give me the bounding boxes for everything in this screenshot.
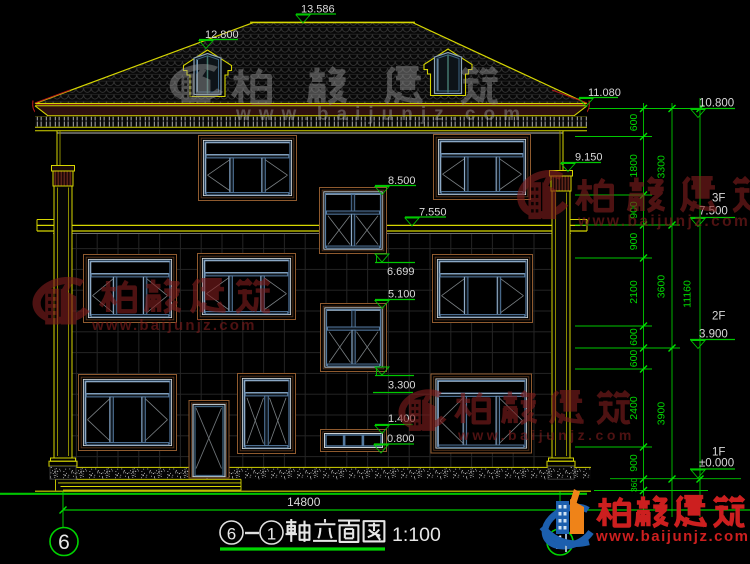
svg-text:11160: 11160 xyxy=(682,280,694,308)
svg-text:3.300: 3.300 xyxy=(388,380,416,392)
svg-text:www.baijunjz.com: www.baijunjz.com xyxy=(595,528,749,545)
svg-text:13.586: 13.586 xyxy=(301,4,335,16)
svg-text:3900: 3900 xyxy=(656,402,668,426)
svg-text:3300: 3300 xyxy=(656,155,668,179)
svg-text:0.800: 0.800 xyxy=(387,433,415,445)
svg-text:1:100: 1:100 xyxy=(392,524,441,546)
svg-text:2F: 2F xyxy=(712,311,725,323)
svg-text:2100: 2100 xyxy=(628,280,640,304)
svg-text:9.150: 9.150 xyxy=(575,152,603,164)
svg-text:10.800: 10.800 xyxy=(699,98,734,110)
svg-text:www.baijunjz.com: www.baijunjz.com xyxy=(577,213,750,230)
svg-text:900: 900 xyxy=(628,454,640,472)
svg-text:www.baijunjz.com: www.baijunjz.com xyxy=(91,317,257,334)
svg-text:6: 6 xyxy=(227,525,236,544)
svg-text:6.699: 6.699 xyxy=(387,266,415,278)
svg-text:2400: 2400 xyxy=(628,396,640,420)
svg-text:3600: 3600 xyxy=(656,275,668,299)
svg-text:3.900: 3.900 xyxy=(699,329,728,341)
svg-text:5.100: 5.100 xyxy=(388,289,416,301)
svg-text:360: 360 xyxy=(629,478,639,492)
svg-text:12.800: 12.800 xyxy=(205,29,239,41)
svg-text:7.550: 7.550 xyxy=(419,207,447,219)
svg-text:±0.000: ±0.000 xyxy=(699,458,734,470)
svg-text:www.baijunjz.com: www.baijunjz.com xyxy=(235,104,528,125)
svg-text:900: 900 xyxy=(628,233,640,251)
svg-text:8.500: 8.500 xyxy=(388,175,416,187)
svg-text:600: 600 xyxy=(628,114,640,132)
svg-text:1: 1 xyxy=(267,525,276,544)
svg-text:6: 6 xyxy=(58,531,70,554)
svg-text:600: 600 xyxy=(628,328,640,346)
svg-text:600: 600 xyxy=(628,350,640,368)
svg-text:3F: 3F xyxy=(712,193,725,205)
svg-text:14800: 14800 xyxy=(287,495,321,509)
svg-text:www.baijunjz.com: www.baijunjz.com xyxy=(457,427,635,443)
svg-text:11.080: 11.080 xyxy=(588,87,621,99)
svg-text:1800: 1800 xyxy=(628,154,640,178)
